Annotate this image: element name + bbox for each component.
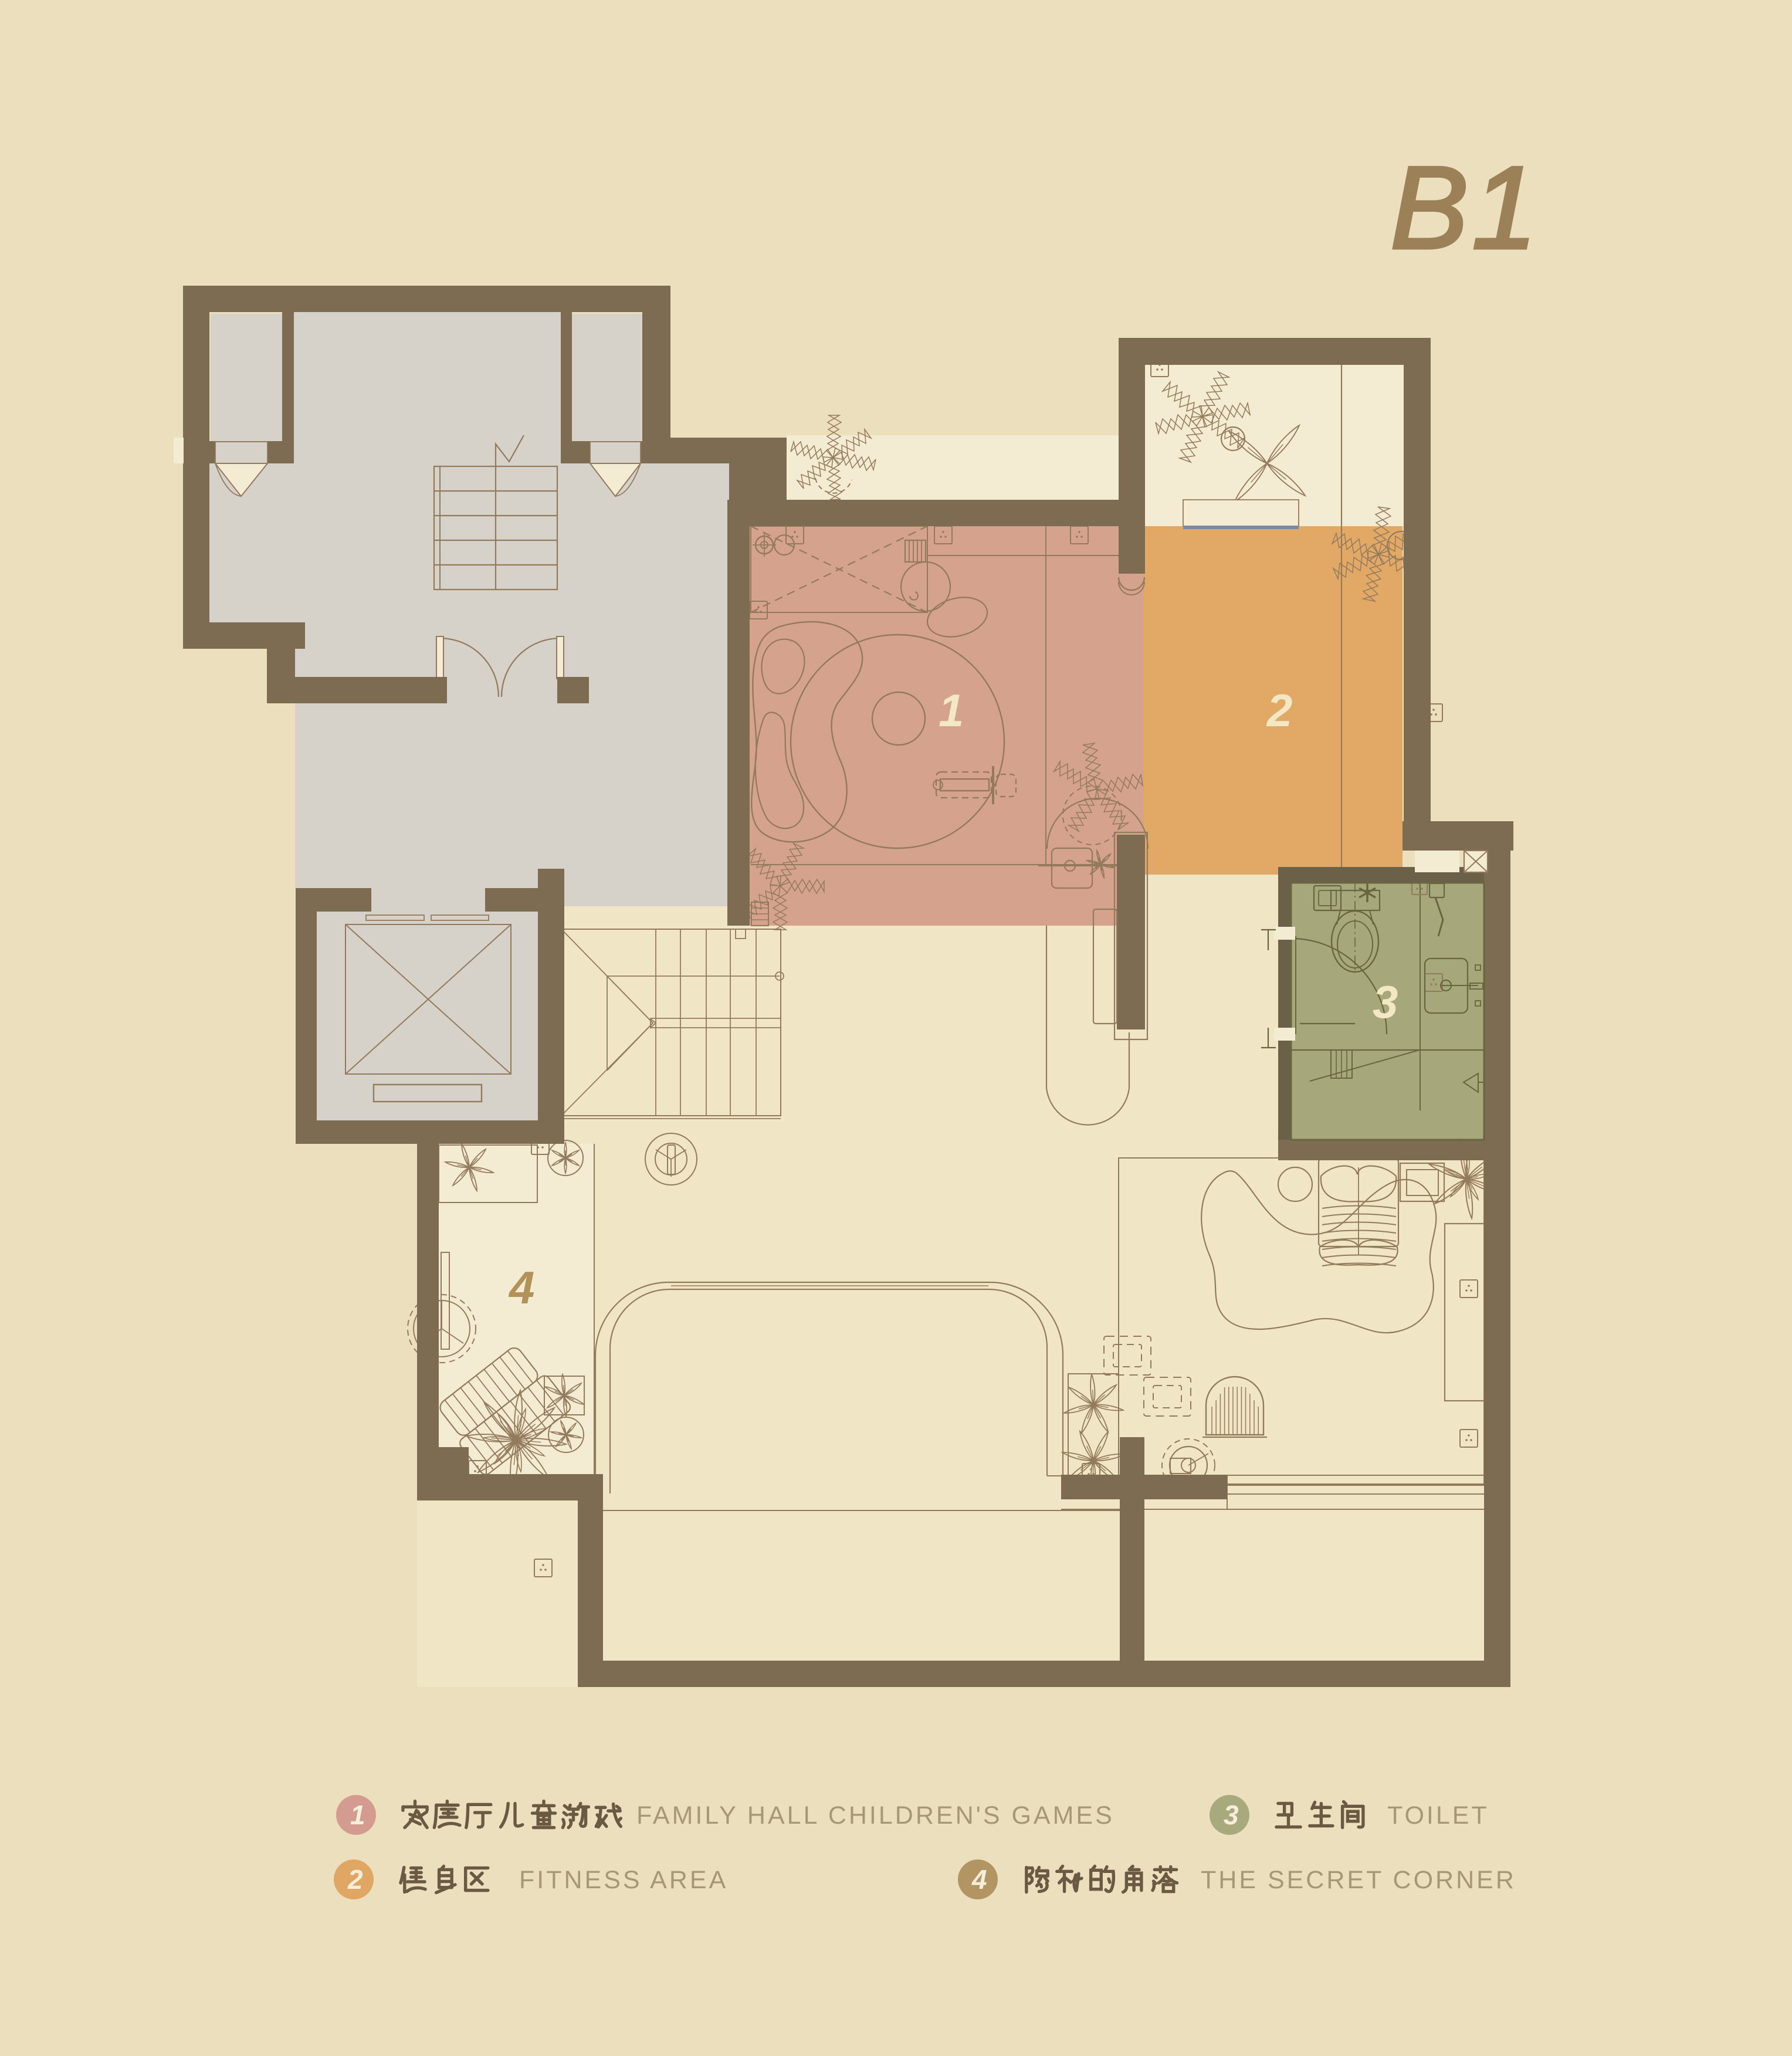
svg-text:TOILET: TOILET (1387, 1801, 1489, 1830)
svg-text:2: 2 (1266, 685, 1292, 736)
svg-text:4: 4 (971, 1864, 987, 1895)
svg-text:3: 3 (1373, 976, 1398, 1028)
svg-text:2: 2 (347, 1864, 363, 1895)
svg-text:1: 1 (350, 1800, 365, 1830)
svg-text:FITNESS AREA: FITNESS AREA (519, 1866, 728, 1894)
svg-text:FAMILY HALL CHILDREN'S GAMES: FAMILY HALL CHILDREN'S GAMES (636, 1801, 1115, 1830)
svg-text:4: 4 (508, 1262, 534, 1313)
svg-text:3: 3 (1224, 1800, 1239, 1830)
svg-text:1: 1 (939, 685, 964, 736)
svg-text:THE SECRET CORNER: THE SECRET CORNER (1201, 1866, 1516, 1894)
svg-text:B1: B1 (1390, 143, 1541, 273)
